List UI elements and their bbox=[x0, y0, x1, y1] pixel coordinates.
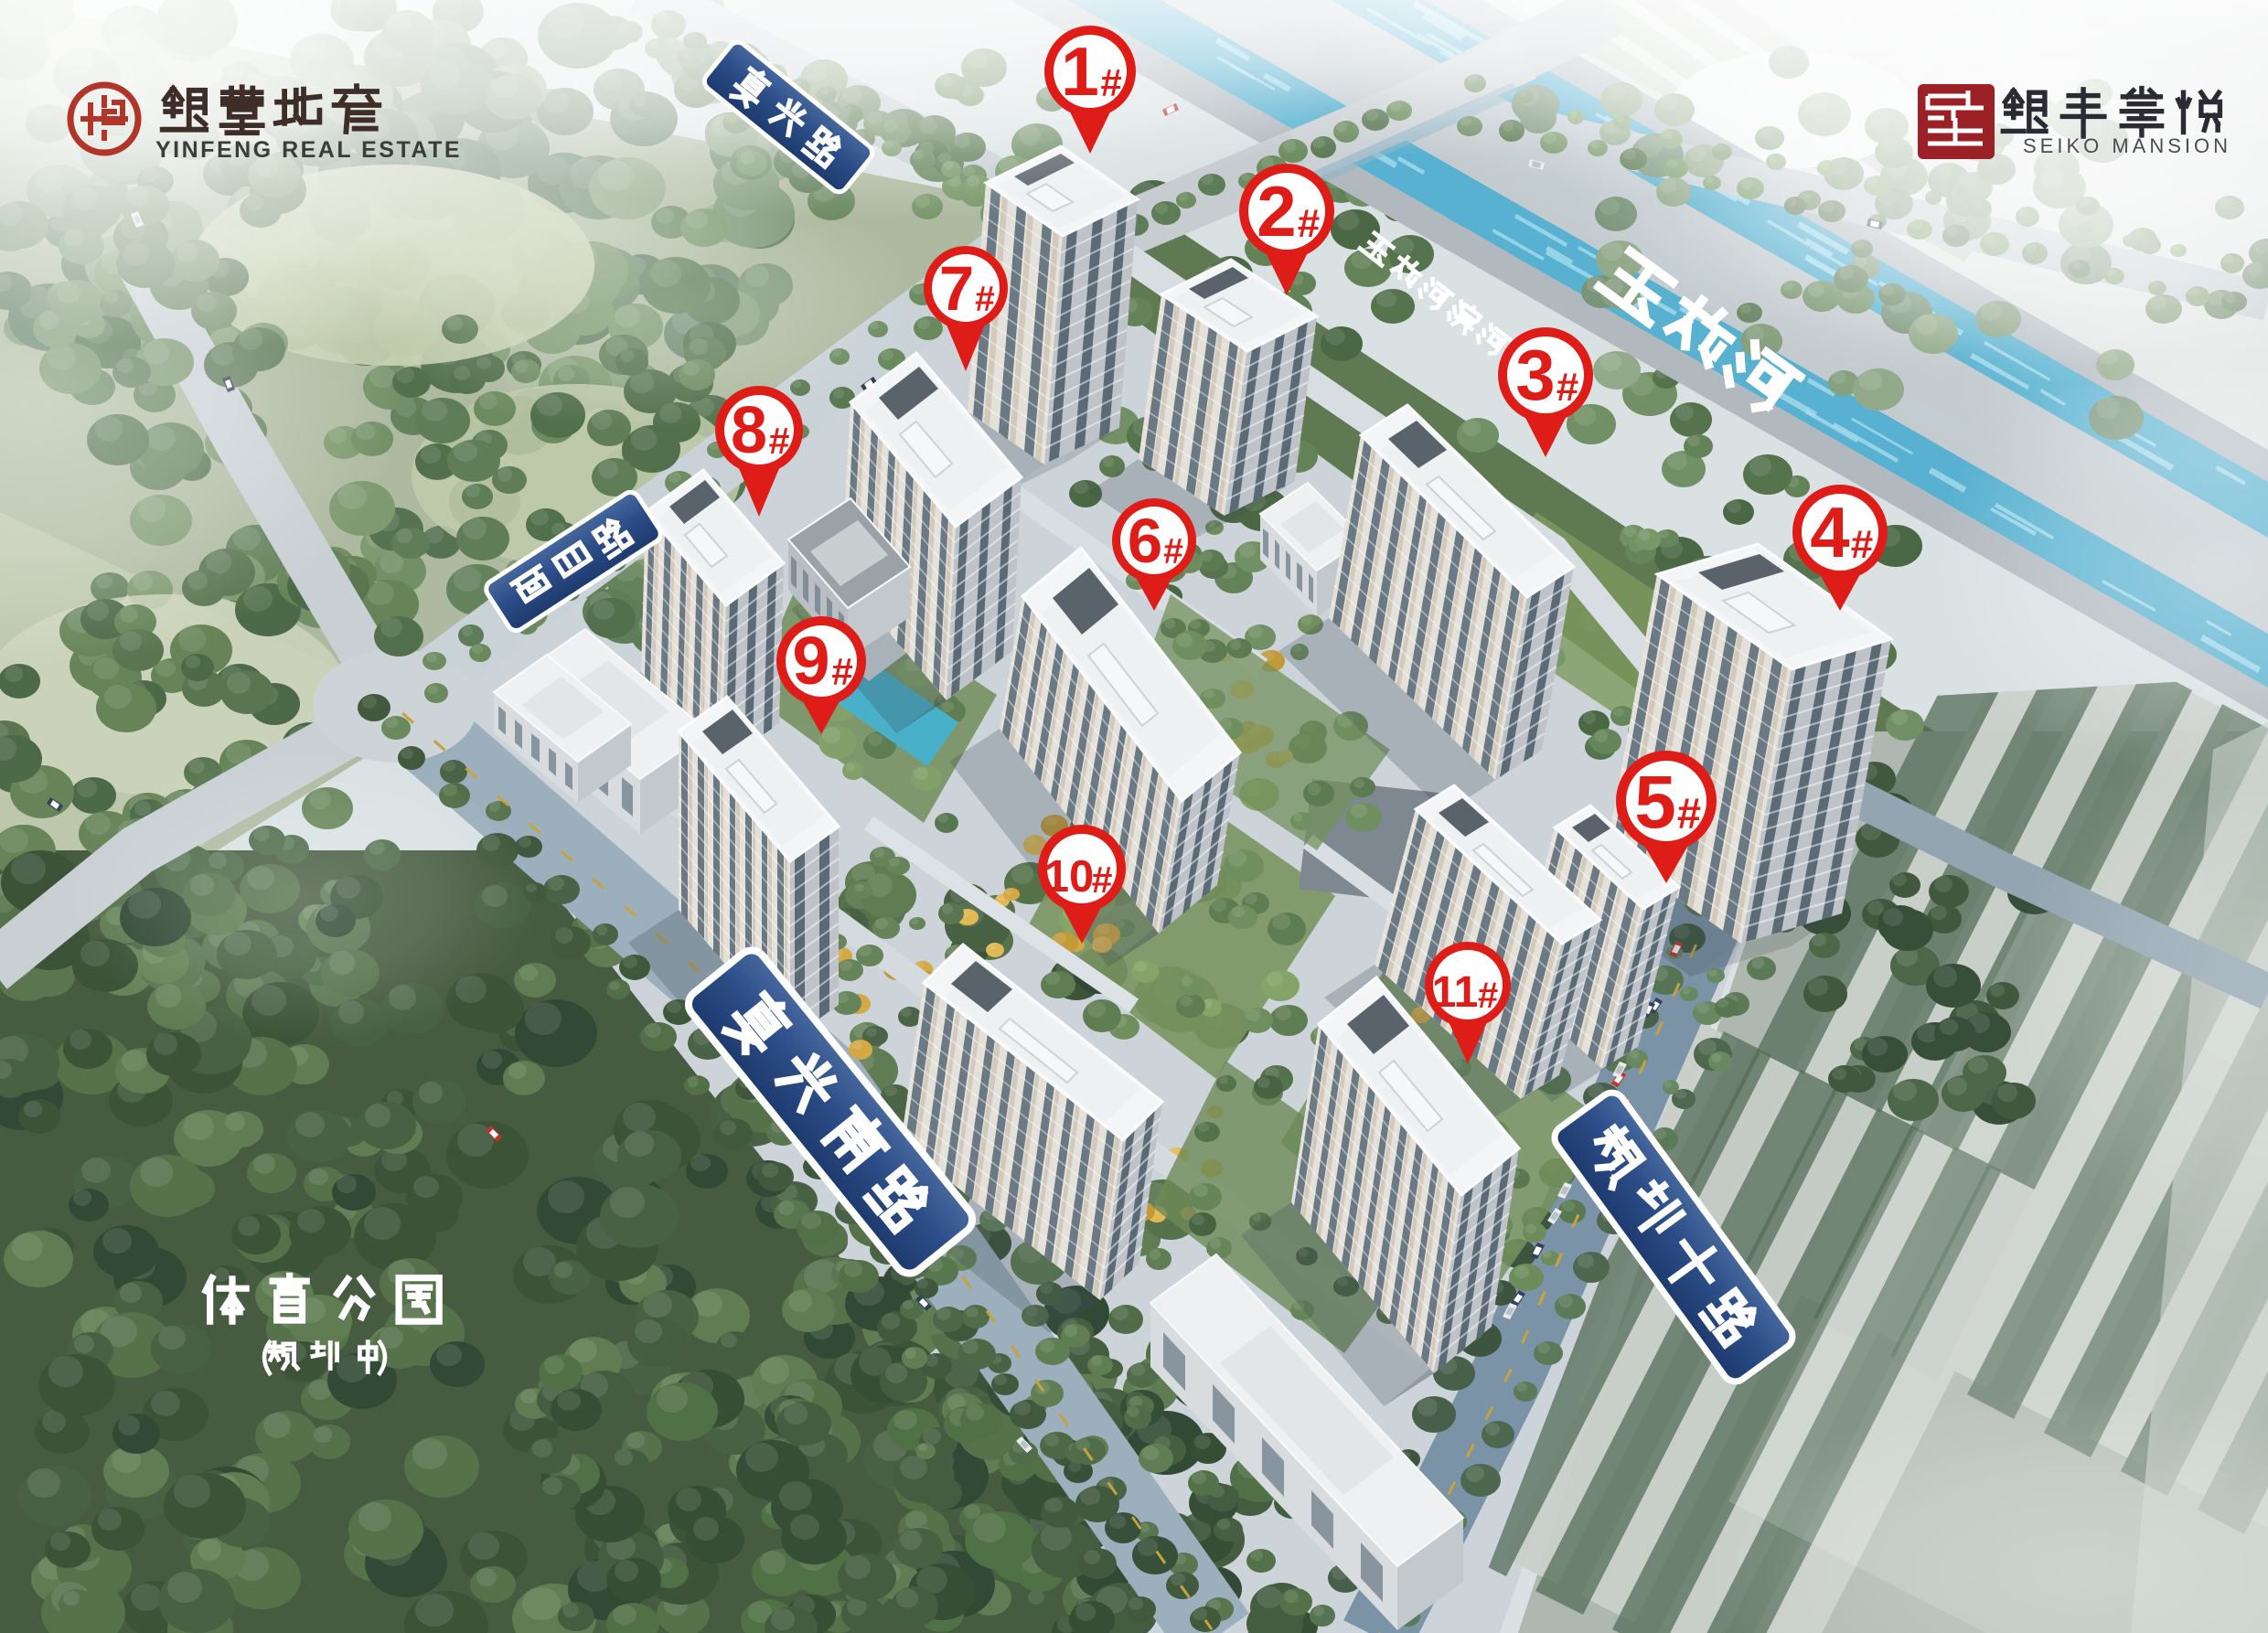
svg-text:YINFENG REAL ESTATE: YINFENG REAL ESTATE bbox=[155, 137, 462, 163]
svg-text:11: 11 bbox=[1432, 968, 1479, 1017]
svg-text:9: 9 bbox=[792, 623, 829, 699]
svg-text:#: # bbox=[831, 650, 852, 693]
svg-text:4: 4 bbox=[1810, 492, 1849, 572]
svg-text:SEIKO MANSION: SEIKO MANSION bbox=[2023, 134, 2231, 157]
svg-text:1: 1 bbox=[1061, 33, 1099, 110]
svg-text:2: 2 bbox=[1257, 171, 1296, 251]
svg-text:#: # bbox=[1851, 522, 1873, 567]
svg-text:#: # bbox=[1298, 201, 1320, 246]
svg-text:10: 10 bbox=[1044, 852, 1095, 902]
svg-text:6: 6 bbox=[1128, 506, 1162, 576]
svg-text:#: # bbox=[1557, 365, 1578, 410]
svg-text:#: # bbox=[1100, 61, 1121, 104]
svg-text:#: # bbox=[1677, 789, 1701, 838]
svg-text:#: # bbox=[1478, 976, 1498, 1016]
svg-text:7: 7 bbox=[939, 253, 974, 324]
svg-text:#: # bbox=[769, 420, 790, 462]
svg-text:8: 8 bbox=[731, 394, 767, 467]
svg-text:5: 5 bbox=[1634, 761, 1676, 844]
svg-text:#: # bbox=[975, 280, 995, 319]
svg-text:#: # bbox=[1092, 859, 1113, 901]
svg-text:3: 3 bbox=[1515, 335, 1555, 415]
svg-text:#: # bbox=[1163, 532, 1183, 571]
